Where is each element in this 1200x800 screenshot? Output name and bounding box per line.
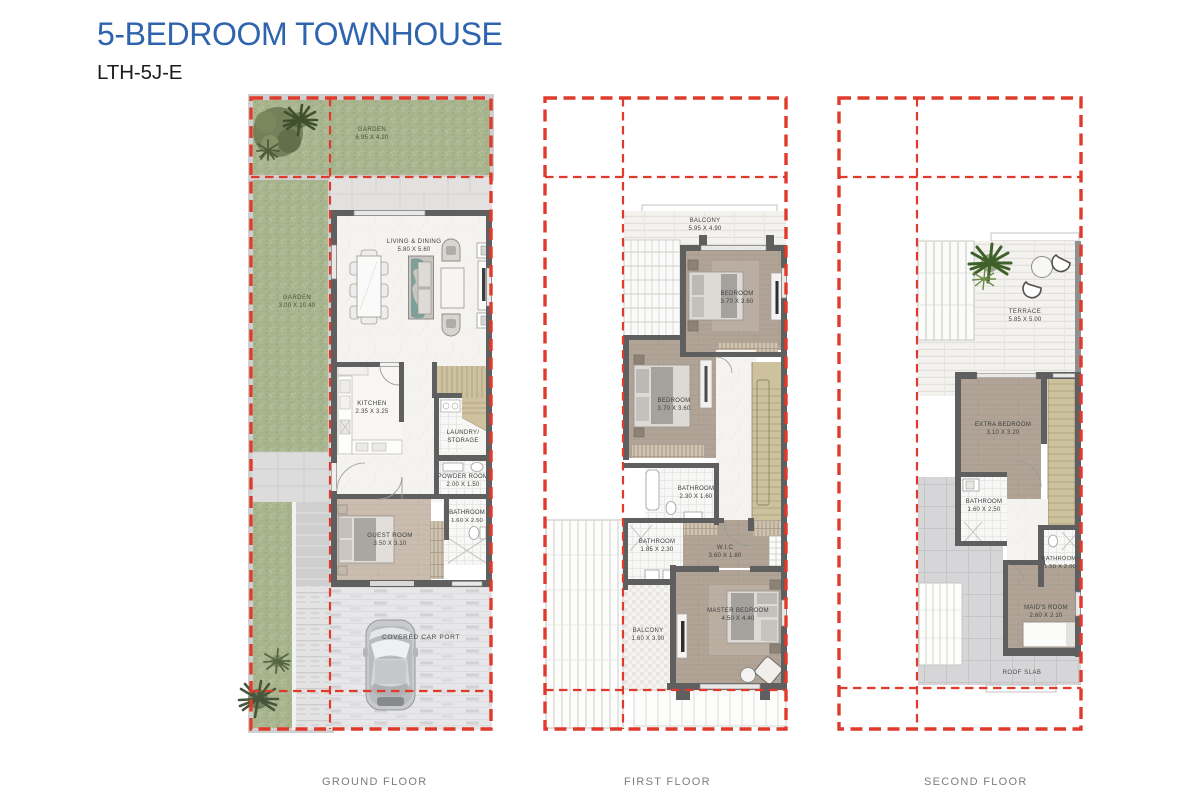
svg-text:1.60 X 2.50: 1.60 X 2.50 <box>968 507 1001 513</box>
svg-text:2.30 X 1.60: 2.30 X 1.60 <box>680 494 713 500</box>
svg-text:EXTRA BEDROOM: EXTRA BEDROOM <box>975 422 1031 428</box>
svg-text:3.50 X 3.10: 3.50 X 3.10 <box>374 541 407 547</box>
svg-text:5.85 X 5.00: 5.85 X 5.00 <box>1009 317 1042 323</box>
svg-text:1.85 X 2.30: 1.85 X 2.30 <box>641 547 674 553</box>
svg-text:3.60 X 1.80: 3.60 X 1.80 <box>709 553 742 559</box>
svg-text:BALCONY: BALCONY <box>633 628 664 634</box>
svg-text:4.50 X 4.40: 4.50 X 4.40 <box>722 616 755 622</box>
svg-text:BATHROOM: BATHROOM <box>1042 556 1077 562</box>
svg-text:BATHROOM: BATHROOM <box>966 499 1003 505</box>
svg-text:3.10 X 3.20: 3.10 X 3.20 <box>987 430 1020 436</box>
svg-text:BEDROOM: BEDROOM <box>720 291 753 297</box>
svg-text:LIVING & DINING: LIVING & DINING <box>387 238 442 245</box>
svg-text:GARDEN: GARDEN <box>283 294 311 301</box>
svg-text:5.95 X 4.90: 5.95 X 4.90 <box>689 226 722 232</box>
svg-text:2.00 X 1.50: 2.00 X 1.50 <box>447 482 480 488</box>
svg-text:POWDER ROOM: POWDER ROOM <box>438 474 489 480</box>
svg-text:BALCONY: BALCONY <box>690 218 721 224</box>
svg-text:2.35 X 3.25: 2.35 X 3.25 <box>356 409 389 415</box>
svg-text:TERRACE: TERRACE <box>1009 308 1042 315</box>
svg-text:1.60 X 2.50: 1.60 X 2.50 <box>451 518 483 524</box>
svg-text:KITCHEN: KITCHEN <box>357 400 387 407</box>
svg-text:6.95 X 4.20: 6.95 X 4.20 <box>356 135 389 141</box>
svg-text:BEDROOM: BEDROOM <box>657 398 690 404</box>
svg-text:ROOF SLAB: ROOF SLAB <box>1003 670 1042 676</box>
svg-text:1.60 X 3.90: 1.60 X 3.90 <box>632 636 665 642</box>
svg-text:LAUNDRY/: LAUNDRY/ <box>447 430 480 436</box>
svg-text:COVERED CAR PORT: COVERED CAR PORT <box>382 634 460 641</box>
svg-text:W.I.C: W.I.C <box>717 545 734 551</box>
svg-text:MAID'S ROOM: MAID'S ROOM <box>1024 605 1068 611</box>
svg-text:BATHROOM: BATHROOM <box>639 539 676 545</box>
svg-text:MASTER BEDROOM: MASTER BEDROOM <box>707 608 769 614</box>
svg-text:3.00 X 10.40: 3.00 X 10.40 <box>279 303 316 309</box>
svg-text:3.70 X 3.60: 3.70 X 3.60 <box>721 299 754 305</box>
svg-text:GUEST ROOM: GUEST ROOM <box>367 532 413 539</box>
svg-text:BATHROOM: BATHROOM <box>449 510 485 516</box>
svg-text:2.60 X 2.10: 2.60 X 2.10 <box>1030 613 1063 619</box>
svg-text:3.70 X 3.60: 3.70 X 3.60 <box>658 406 691 412</box>
svg-text:BATHROOM: BATHROOM <box>678 486 715 492</box>
svg-text:1.50 X 2.00: 1.50 X 2.00 <box>1044 564 1076 570</box>
svg-text:STORAGE: STORAGE <box>447 438 478 444</box>
svg-text:5.80 X 5.60: 5.80 X 5.60 <box>398 247 431 253</box>
svg-text:GARDEN: GARDEN <box>358 126 386 133</box>
